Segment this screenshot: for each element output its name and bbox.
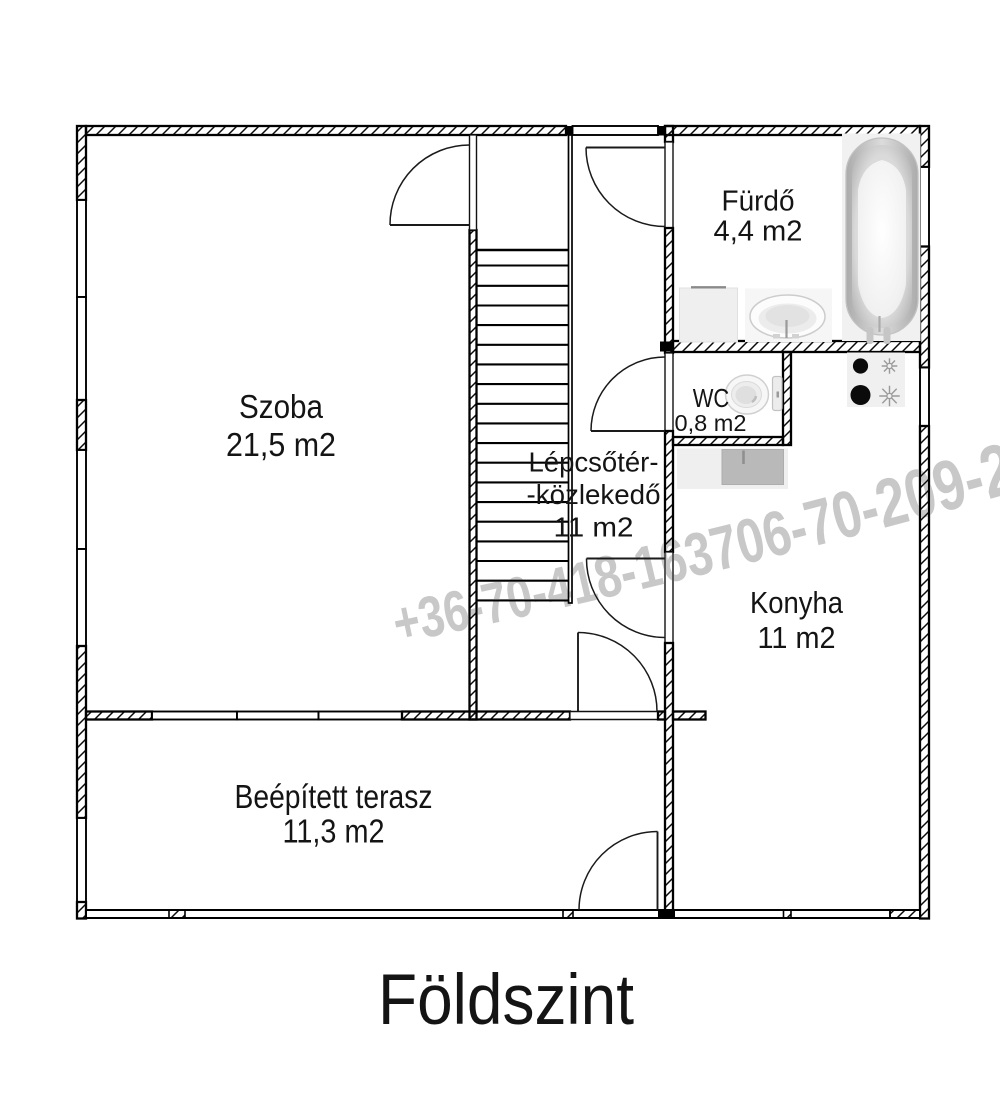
- svg-text:-közlekedő: -közlekedő: [527, 479, 661, 510]
- svg-text:WC: WC: [693, 383, 730, 413]
- svg-text:4,4 m2: 4,4 m2: [714, 216, 803, 248]
- svg-text:Földszint: Földszint: [378, 961, 634, 1040]
- svg-text:Fürdő: Fürdő: [722, 186, 795, 218]
- svg-text:21,5 m2: 21,5 m2: [226, 426, 336, 463]
- svg-text:Szoba: Szoba: [239, 388, 324, 425]
- svg-text:11 m2: 11 m2: [758, 620, 836, 655]
- svg-text:Konyha: Konyha: [750, 585, 844, 620]
- svg-text:Lépcsőtér-: Lépcsőtér-: [529, 447, 659, 478]
- svg-text:0,8 m2: 0,8 m2: [675, 410, 747, 436]
- svg-text:11 m2: 11 m2: [554, 512, 634, 543]
- svg-text:11,3 m2: 11,3 m2: [283, 813, 385, 850]
- svg-text:Beépített terasz: Beépített terasz: [235, 778, 433, 815]
